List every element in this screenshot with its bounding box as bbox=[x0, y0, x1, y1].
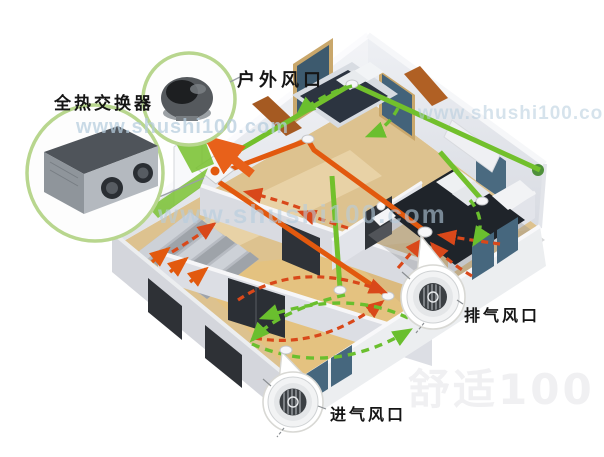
intake-vent-label: 进气风口 bbox=[330, 401, 406, 425]
ventilation-system-diagram: www.shushi100.com www.shushi100.com www.… bbox=[0, 0, 604, 457]
outdoor-vent-icon bbox=[161, 77, 213, 121]
watermark-url-right: www.shushi100.com bbox=[418, 103, 604, 125]
watermark-url-center: www.shushi100.com bbox=[158, 199, 447, 230]
outdoor-vent-label: 户外风口 bbox=[237, 66, 325, 92]
watermark-url-left: www.shushi100.com bbox=[76, 116, 289, 139]
exhaust-vent-label: 排气风口 bbox=[464, 302, 540, 326]
heat-exchanger-label: 全热交换器 bbox=[54, 89, 154, 114]
watermark-brand-logo: 舒适100 bbox=[408, 356, 595, 417]
